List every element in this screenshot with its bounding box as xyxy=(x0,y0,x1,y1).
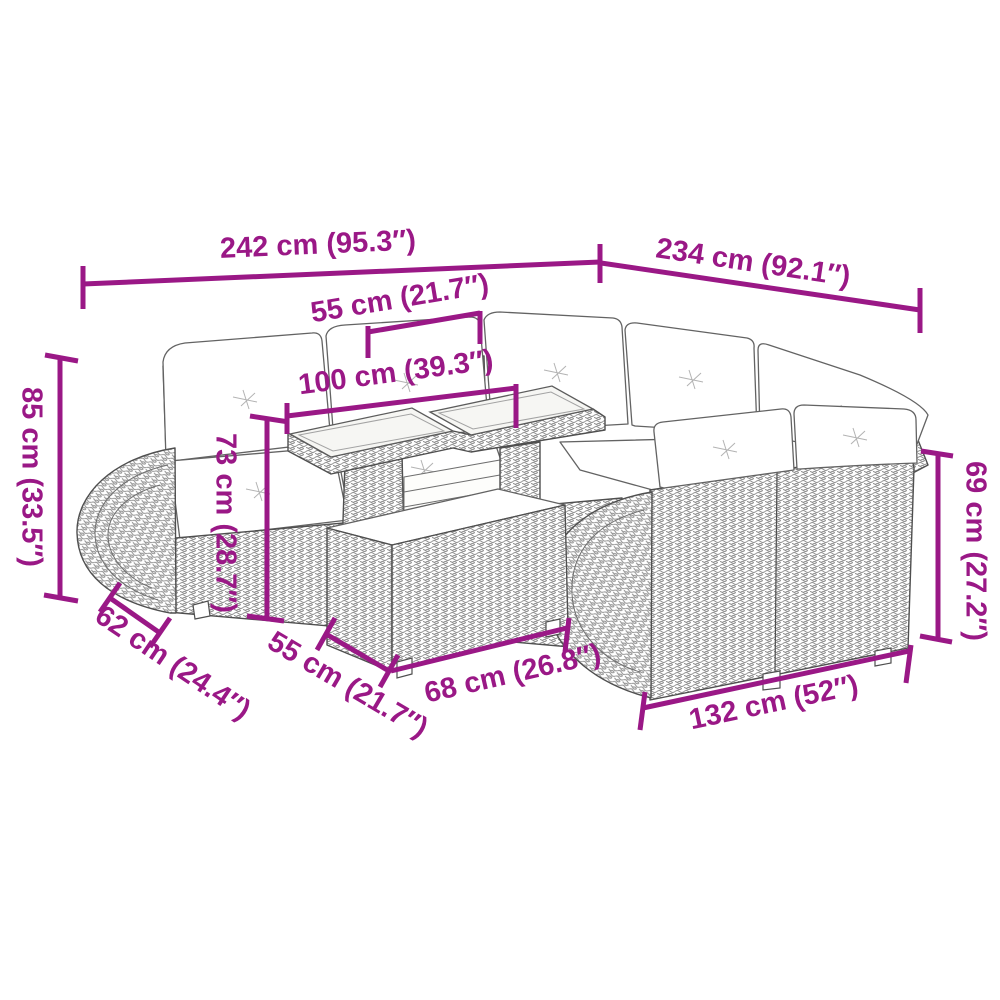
dim-sofa-height-label: 85 cm (33.5″) xyxy=(15,387,47,567)
dim-table-height-label: 73 cm (28.7″) xyxy=(209,433,241,613)
dim-back-left-width-label: 242 cm (95.3″) xyxy=(219,224,416,265)
dim-right-sofa-height-label: 69 cm (27.2″) xyxy=(959,461,991,641)
dim-right-sofa-height-line xyxy=(920,451,953,642)
dim-left-sofa-depth-label: 62 cm (24.4″) xyxy=(89,599,256,726)
diagram-canvas: 242 cm (95.3″) 234 cm (92.1″) 55 cm (21.… xyxy=(0,0,1000,1000)
dimension-diagram: 242 cm (95.3″) 234 cm (92.1″) 55 cm (21.… xyxy=(0,0,1000,1000)
dim-sofa-height-line xyxy=(44,355,78,601)
